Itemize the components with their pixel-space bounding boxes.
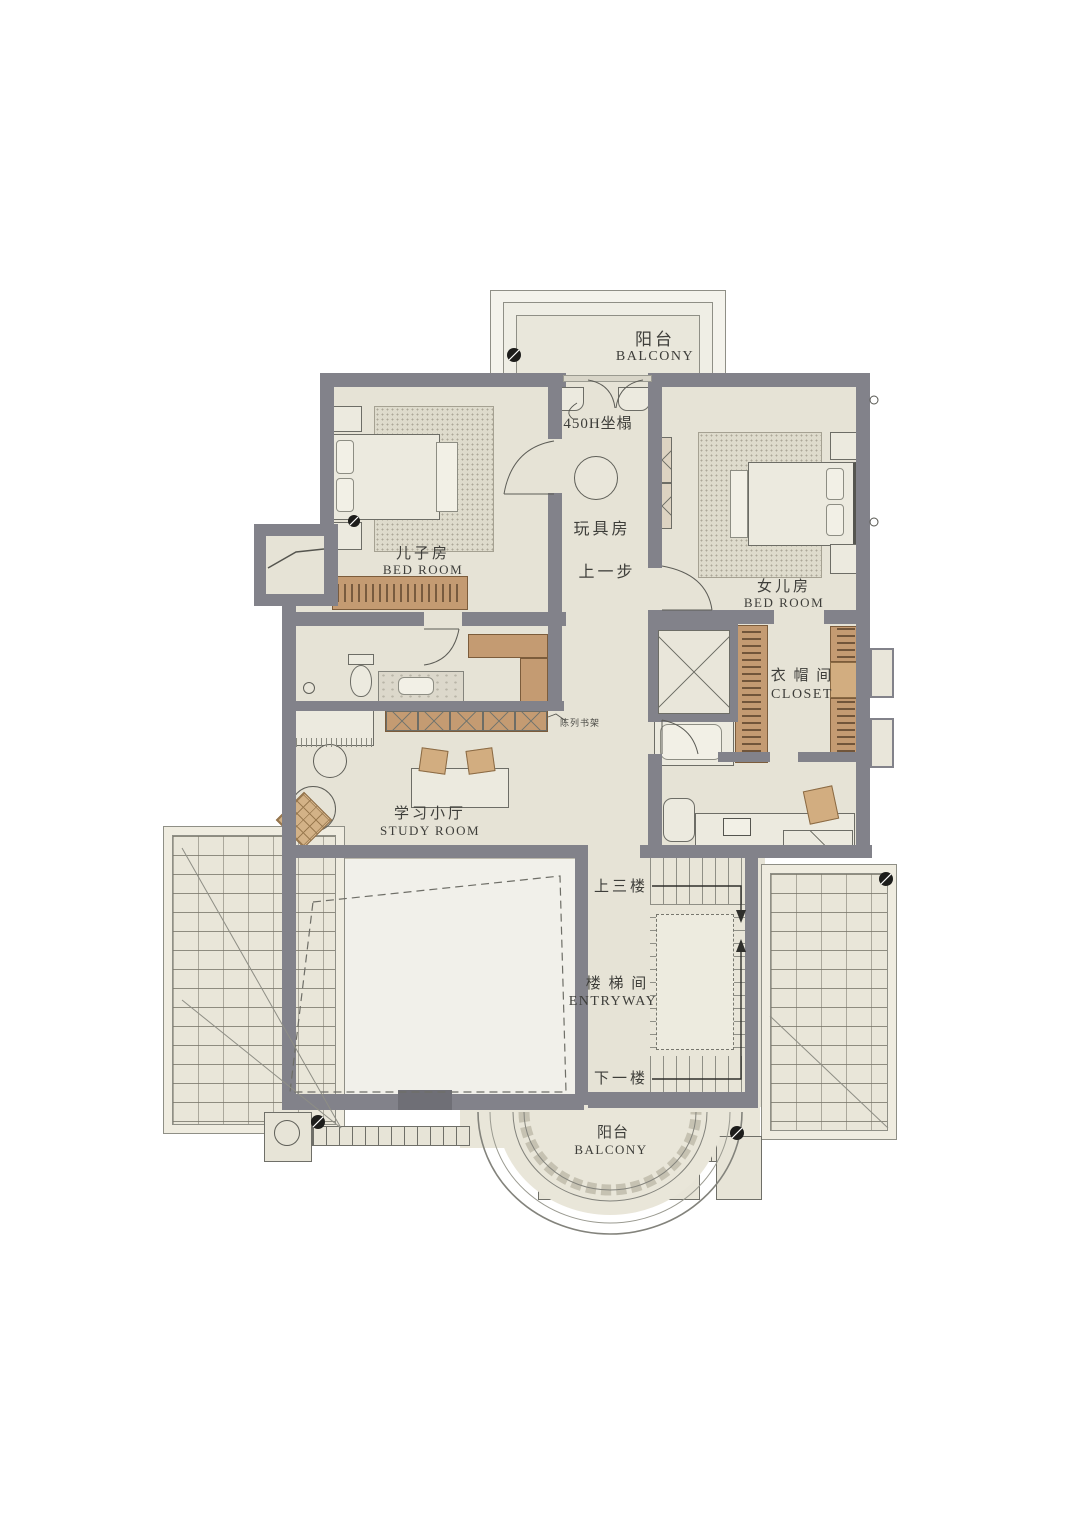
wall-segment: [648, 373, 662, 568]
wall-segment: [320, 373, 334, 549]
wardrobe-left: [735, 625, 768, 763]
wall-segment: [640, 845, 872, 858]
balcony-door-sill: [563, 375, 652, 382]
wall-segment: [648, 373, 870, 387]
pillow: [336, 478, 354, 512]
bed-throw: [436, 442, 458, 512]
wall-segment: [648, 754, 662, 858]
wall-segment: [745, 858, 758, 1108]
wall-segment: [856, 373, 870, 626]
pier-right: [716, 1136, 762, 1200]
wall-segment: [282, 598, 296, 856]
study-chair: [418, 747, 448, 775]
label-seat-note: 450H坐榻: [563, 417, 632, 433]
elevator: [658, 630, 730, 714]
label-stairwell-zh: 楼 梯 间: [586, 977, 649, 993]
pillow: [336, 440, 354, 474]
pillow: [826, 504, 844, 536]
label-closet-zh: 衣 帽 间: [771, 669, 834, 685]
round-table: [313, 744, 347, 778]
label-step-note: 上一步: [578, 565, 635, 582]
corner-desk-return: [520, 658, 548, 704]
column-right-circle: [660, 1160, 690, 1190]
wall-segment: [548, 373, 562, 439]
label-son-room-zh: 儿子房: [396, 547, 450, 563]
bay-window-bump: [870, 648, 894, 698]
sink-basin: [398, 677, 434, 695]
window-seat-right: [618, 387, 650, 411]
balustrade-left: [312, 1126, 470, 1146]
label-balcony-top-zh: 阳台: [635, 331, 675, 349]
corner-desk: [468, 634, 548, 658]
wall-segment: [296, 612, 424, 626]
label-closet-en: CLOSET: [771, 688, 833, 703]
terrace-left: [163, 826, 345, 1134]
pier-left-circle: [274, 1120, 300, 1146]
bay-window-bump: [870, 718, 894, 768]
bay-window-floor: [266, 536, 324, 594]
wall-segment: [718, 752, 770, 762]
label-study-zh: 学习小厅: [394, 807, 466, 823]
label-playroom: 玩具房: [573, 522, 630, 539]
nightstand: [332, 406, 362, 432]
wall-segment: [548, 612, 562, 711]
pillow: [826, 468, 844, 500]
bed-bench: [730, 470, 748, 538]
stair-treads-lower: [650, 1056, 745, 1092]
label-balcony-top-en: BALCONY: [616, 350, 694, 365]
stair-treads-upper: [650, 858, 745, 904]
wall-segment: [798, 752, 856, 762]
label-stairwell-en: ENTRYWAY: [569, 995, 658, 1010]
chair-white: [663, 798, 695, 842]
bathtub-basin: [660, 724, 722, 760]
nightstand: [830, 544, 858, 574]
wall-segment: [282, 701, 564, 711]
label-stairs-down: 下一楼: [594, 1072, 648, 1088]
wardrobe-son: [332, 576, 468, 610]
wall-segment: [320, 373, 566, 387]
label-son-room-en: BED ROOM: [383, 563, 463, 577]
nightstand: [830, 432, 858, 460]
floor-plan: 阳台 BALCONY 450H坐榻 玩具房 上一步 儿子房 BED ROOM 女…: [0, 0, 1080, 1527]
wall-segment: [282, 856, 296, 1110]
toilet-bowl: [350, 665, 372, 697]
label-balcony-bottom-zh: 阳台: [597, 1126, 629, 1142]
wall-segment: [575, 845, 588, 1105]
wall-pilaster: [398, 1090, 452, 1110]
label-balcony-bottom-en: BALCONY: [574, 1143, 647, 1157]
label-daughter-room-en: BED ROOM: [744, 596, 824, 610]
toilet-tank: [348, 654, 374, 665]
study-desk: [411, 768, 509, 808]
column-left-circle: [546, 1160, 576, 1190]
display-bookshelf: [385, 710, 548, 732]
terrace-right: [761, 864, 897, 1140]
label-shelf-note: 陈列书架: [560, 716, 600, 729]
label-stairs-up: 上三楼: [594, 880, 648, 896]
table-fringe: [296, 738, 372, 747]
wall-segment: [856, 624, 870, 800]
wall-segment: [588, 1092, 758, 1108]
label-daughter-room-zh: 女儿房: [757, 580, 811, 596]
stair-well: [656, 914, 734, 1050]
wall-segment: [548, 493, 562, 614]
floor-drain: [303, 682, 315, 694]
label-study-en: STUDY ROOM: [380, 824, 480, 838]
round-pouf: [574, 456, 618, 500]
study-chair: [465, 747, 495, 775]
monitor: [723, 818, 751, 836]
wall-segment: [296, 845, 576, 858]
